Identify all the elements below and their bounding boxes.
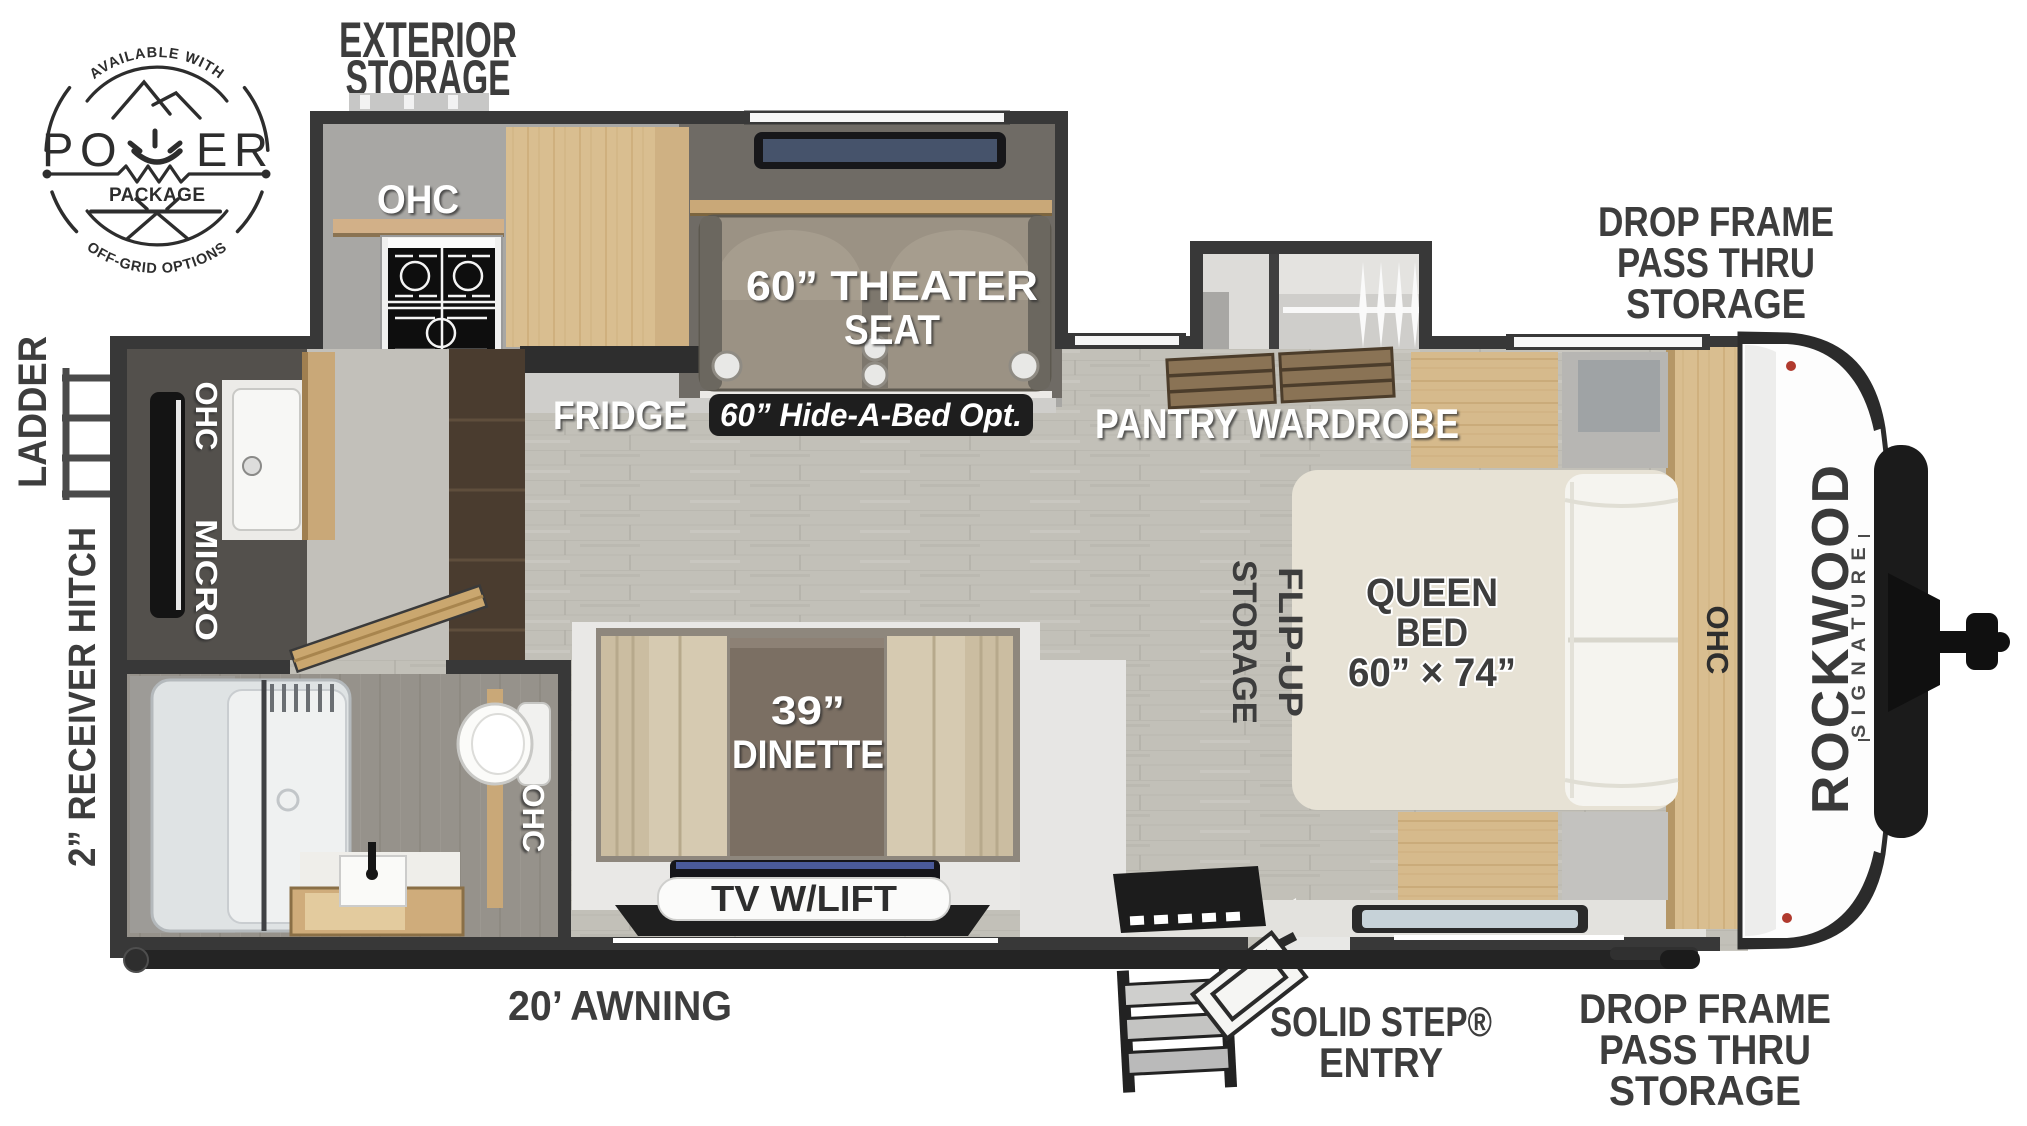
- svg-text:LADDER: LADDER: [11, 336, 55, 488]
- svg-text:DINETTE: DINETTE: [732, 733, 884, 777]
- svg-text:STORAGE: STORAGE: [1225, 560, 1263, 724]
- svg-text:PASS THRU: PASS THRU: [1617, 239, 1815, 286]
- svg-text:60” × 74”: 60” × 74”: [1348, 651, 1516, 695]
- svg-text:PANTRY WARDROBE: PANTRY WARDROBE: [1095, 400, 1459, 447]
- svg-text:STORAGE: STORAGE: [1609, 1067, 1801, 1114]
- svg-text:BED: BED: [1396, 611, 1468, 655]
- svg-text:R: R: [234, 123, 274, 176]
- svg-text:OHC: OHC: [1700, 606, 1735, 675]
- svg-text:DROP FRAME: DROP FRAME: [1598, 198, 1834, 245]
- svg-text:OHC: OHC: [189, 382, 224, 451]
- svg-text:MICRO: MICRO: [189, 519, 224, 641]
- svg-text:E: E: [196, 123, 233, 176]
- svg-text:SEAT: SEAT: [844, 306, 940, 353]
- svg-text:SOLID STEP®: SOLID STEP®: [1270, 998, 1492, 1045]
- svg-text:DROP FRAME: DROP FRAME: [1579, 985, 1831, 1032]
- svg-text:O: O: [80, 123, 123, 176]
- svg-text:OHC: OHC: [516, 784, 551, 853]
- svg-text:ENTRY: ENTRY: [1319, 1039, 1443, 1086]
- svg-text:39”: 39”: [771, 689, 845, 733]
- svg-text:20’ AWNING: 20’ AWNING: [508, 982, 732, 1029]
- svg-text:SIGNATURE: SIGNATURE: [1849, 538, 1870, 738]
- svg-text:TV W/LIFT: TV W/LIFT: [711, 878, 897, 919]
- svg-text:FLIP-UP: FLIP-UP: [1271, 567, 1309, 717]
- svg-text:QUEEN: QUEEN: [1366, 571, 1498, 615]
- svg-text:2” RECEIVER HITCH: 2” RECEIVER HITCH: [62, 527, 104, 867]
- svg-text:STORAGE: STORAGE: [1626, 280, 1806, 327]
- svg-text:OHC: OHC: [377, 178, 459, 222]
- svg-text:60” THEATER: 60” THEATER: [746, 262, 1038, 309]
- svg-text:60” Hide-A-Bed Opt.: 60” Hide-A-Bed Opt.: [720, 397, 1022, 433]
- svg-text:PASS THRU: PASS THRU: [1599, 1026, 1811, 1073]
- svg-text:P: P: [42, 123, 79, 176]
- svg-text:PACKAGE: PACKAGE: [109, 185, 205, 206]
- svg-text:FRIDGE: FRIDGE: [553, 394, 687, 438]
